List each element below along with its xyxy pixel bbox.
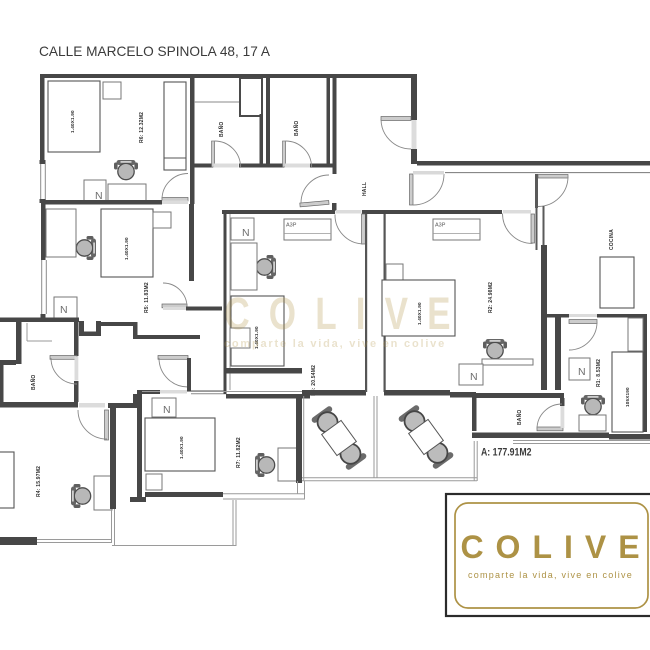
svg-text:N: N <box>578 366 586 378</box>
svg-text:BAÑO: BAÑO <box>218 121 225 137</box>
svg-text:comparte la vida, vive en coli: comparte la vida, vive en colive <box>224 338 446 350</box>
svg-text:1.40X1.90: 1.40X1.90 <box>124 237 129 260</box>
svg-text:N: N <box>470 371 478 383</box>
svg-text:R7: 11.82M2: R7: 11.82M2 <box>236 437 242 468</box>
svg-text:R6: 12.32M2: R6: 12.32M2 <box>139 112 145 143</box>
svg-text:1.40X1.90: 1.40X1.90 <box>70 110 75 133</box>
svg-text:BAÑO: BAÑO <box>30 374 37 390</box>
svg-text:A3P: A3P <box>286 223 297 229</box>
svg-text:COLIVE: COLIVE <box>224 288 469 339</box>
svg-text:N: N <box>242 227 250 239</box>
svg-text:1.40X1.90: 1.40X1.90 <box>179 436 184 459</box>
svg-text:A: 177.91M2: A: 177.91M2 <box>481 447 532 459</box>
svg-text:R4: 15.97M2: R4: 15.97M2 <box>36 466 42 497</box>
svg-text:BAÑO: BAÑO <box>293 120 300 136</box>
svg-text:N: N <box>163 404 171 416</box>
svg-text:105X190: 105X190 <box>625 387 630 407</box>
svg-text:A3P: A3P <box>435 223 446 229</box>
svg-text:HALL: HALL <box>362 182 368 196</box>
svg-text:COLIVE: COLIVE <box>460 529 650 565</box>
svg-text:BAÑO: BAÑO <box>516 409 523 425</box>
svg-text:R1: 8.53M2: R1: 8.53M2 <box>596 359 602 387</box>
svg-text:R2: 24.98M2: R2: 24.98M2 <box>488 282 494 313</box>
svg-text:comparte la vida, vive en coli: comparte la vida, vive en colive <box>468 570 633 580</box>
svg-text:R5: 11.83M2: R5: 11.83M2 <box>144 282 150 313</box>
svg-text:N: N <box>60 304 68 316</box>
svg-text:CALLE MARCELO SPINOLA 48, 17 A: CALLE MARCELO SPINOLA 48, 17 A <box>39 44 271 59</box>
svg-text:COCINA: COCINA <box>609 229 615 250</box>
